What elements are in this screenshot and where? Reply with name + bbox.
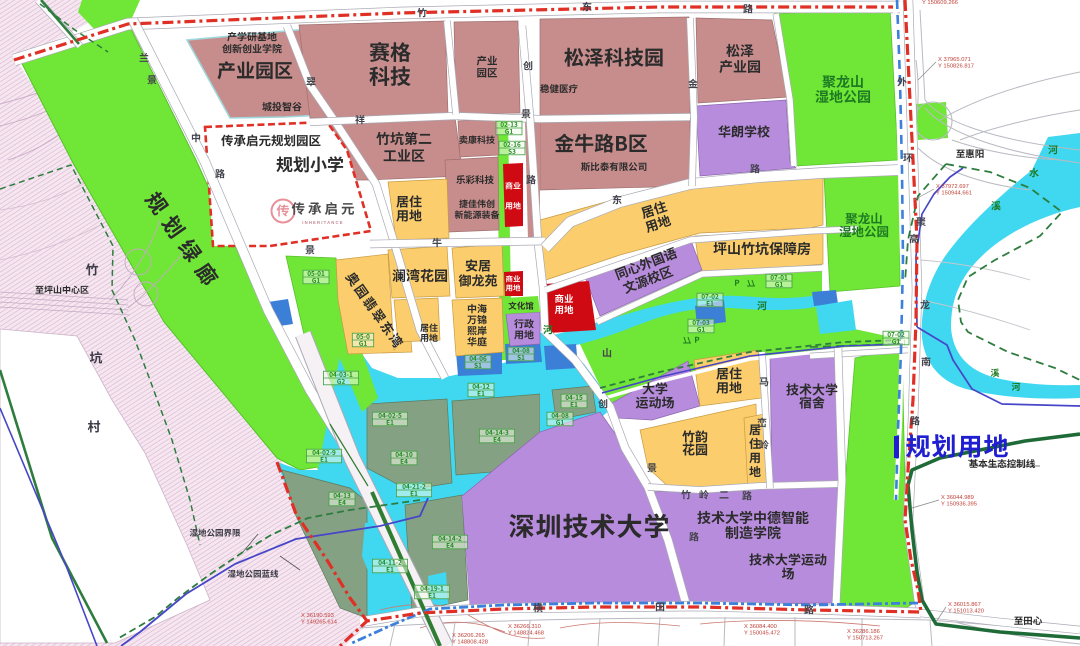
svg-text:X 36286.186: X 36286.186 bbox=[847, 629, 880, 635]
svg-text:Y 148824.468: Y 148824.468 bbox=[508, 631, 544, 637]
svg-text:X 36084.400: X 36084.400 bbox=[744, 624, 777, 630]
svg-text:Y 150713.267: Y 150713.267 bbox=[847, 636, 883, 642]
svg-text:Y 150609.266: Y 150609.266 bbox=[922, 0, 958, 6]
svg-text:Y 150826.817: Y 150826.817 bbox=[938, 64, 974, 70]
svg-text:Y 151013.420: Y 151013.420 bbox=[948, 609, 984, 615]
svg-text:Y 150944.661: Y 150944.661 bbox=[936, 191, 972, 197]
svg-text:INHERITANCE: INHERITANCE bbox=[302, 220, 344, 225]
svg-text:X 36015.867: X 36015.867 bbox=[948, 602, 981, 608]
svg-text:X 37972.697: X 37972.697 bbox=[936, 184, 969, 190]
svg-text:Y 150045.472: Y 150045.472 bbox=[744, 631, 780, 637]
svg-text:Y 148808.428: Y 148808.428 bbox=[452, 640, 488, 646]
svg-text:X 36206.265: X 36206.265 bbox=[452, 633, 485, 639]
svg-text:X 36044.989: X 36044.989 bbox=[941, 495, 974, 501]
svg-text:Y 149265.614: Y 149265.614 bbox=[301, 620, 338, 626]
svg-text:X 37965.071: X 37965.071 bbox=[938, 57, 971, 63]
svg-text:X 36190.593: X 36190.593 bbox=[301, 613, 334, 619]
svg-text:X 36266.310: X 36266.310 bbox=[508, 624, 541, 630]
svg-text:Y 150936.395: Y 150936.395 bbox=[941, 502, 977, 508]
